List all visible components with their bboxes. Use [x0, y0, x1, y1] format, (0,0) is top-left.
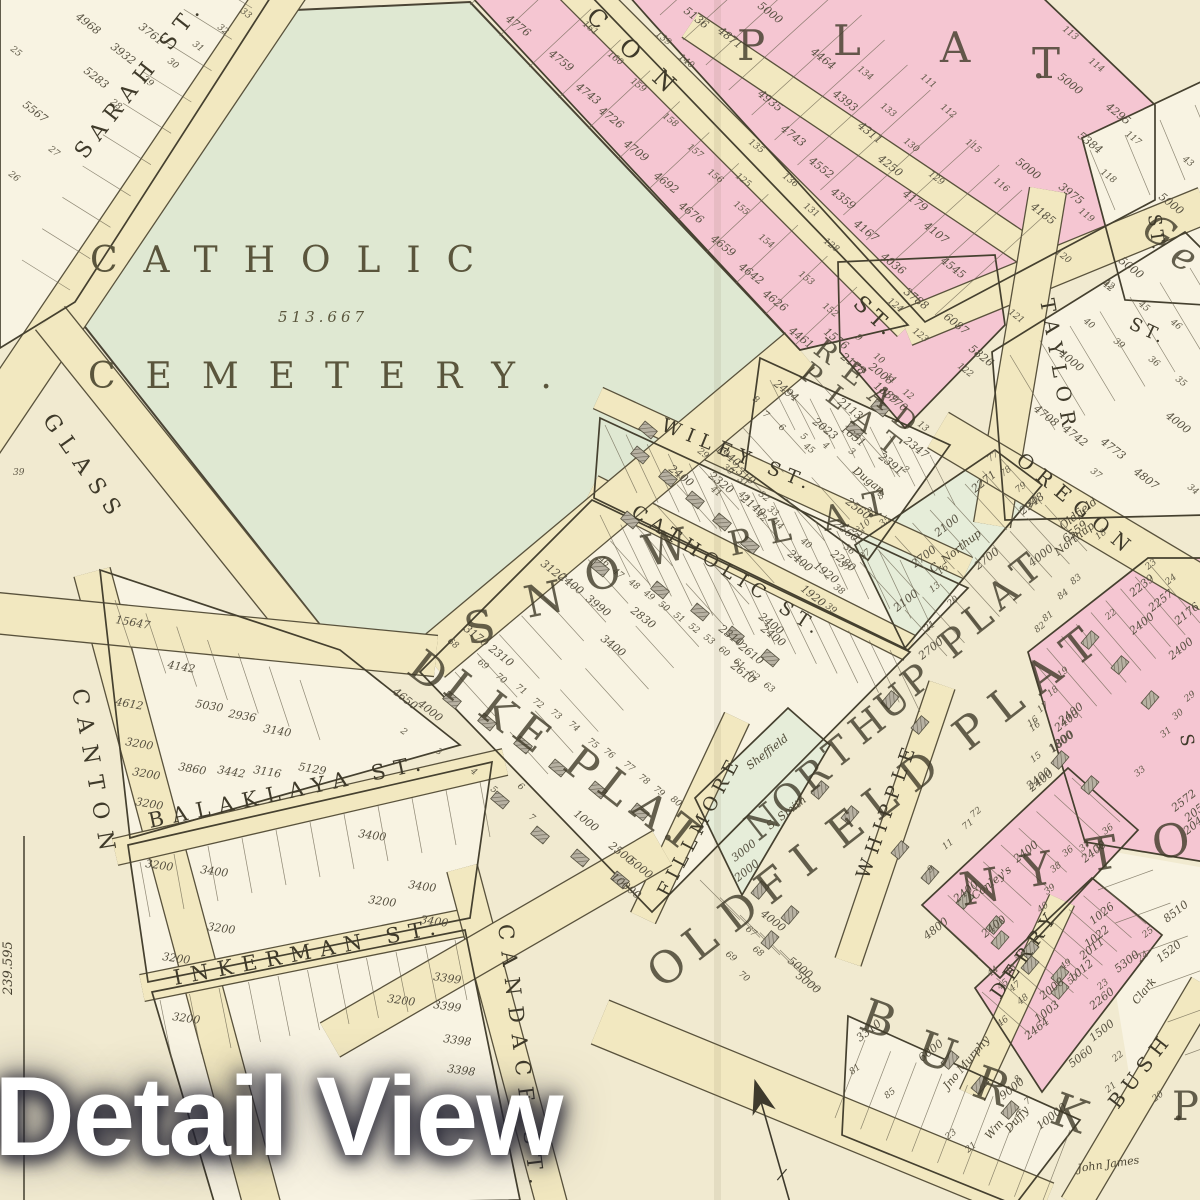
plat-letter-plat-top: L [833, 16, 861, 65]
margin-number: 239.595 [1, 941, 16, 996]
fold-crease [714, 0, 721, 1200]
plat-letter-plat-top: P [737, 21, 765, 70]
plat-letter-big-p: . [1172, 1084, 1185, 1130]
plat-letter-plat-top: A [939, 23, 971, 72]
cemetery-area: 513.667 [278, 308, 368, 326]
lot-number: 39 [13, 468, 25, 478]
map-canvas: 4968376139325283556725262728293031323347… [0, 0, 1200, 1200]
atlas-map: 4968376139325283556725262728293031323347… [0, 0, 1200, 1200]
watermark-text: Detail View [0, 1052, 694, 1181]
plat-letter-plat-top: . [1032, 39, 1045, 88]
cemetery-name-line2: CEMETERY. [88, 356, 582, 397]
cemetery-name-line1: CATHOLIC [90, 240, 500, 281]
